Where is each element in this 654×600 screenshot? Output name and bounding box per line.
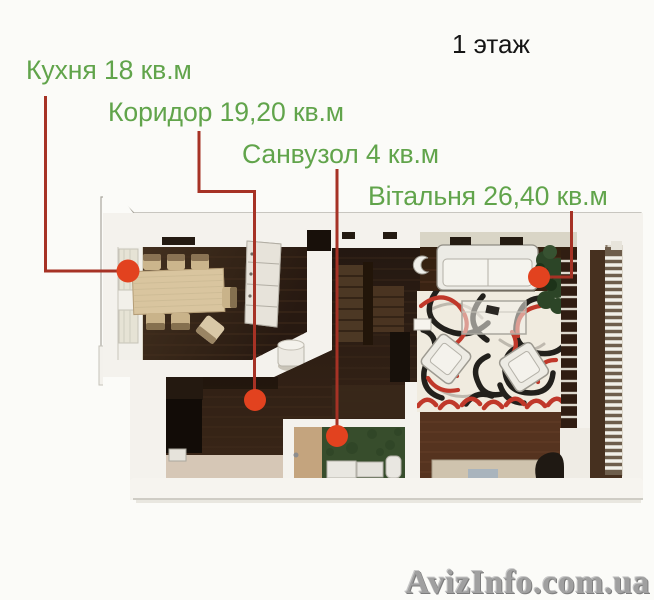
svg-text:1 этаж: 1 этаж: [452, 29, 530, 59]
svg-text:Коридор 19,20 кв.м: Коридор 19,20 кв.м: [108, 97, 344, 127]
svg-text:Вітальня 26,40 кв.м: Вітальня 26,40 кв.м: [368, 181, 608, 211]
svg-text:AvizInfo.com.ua: AvizInfo.com.ua: [405, 564, 650, 600]
svg-text:Кухня 18 кв.м: Кухня 18 кв.м: [26, 55, 192, 85]
svg-text:Санвузол 4 кв.м: Санвузол 4 кв.м: [242, 139, 439, 169]
